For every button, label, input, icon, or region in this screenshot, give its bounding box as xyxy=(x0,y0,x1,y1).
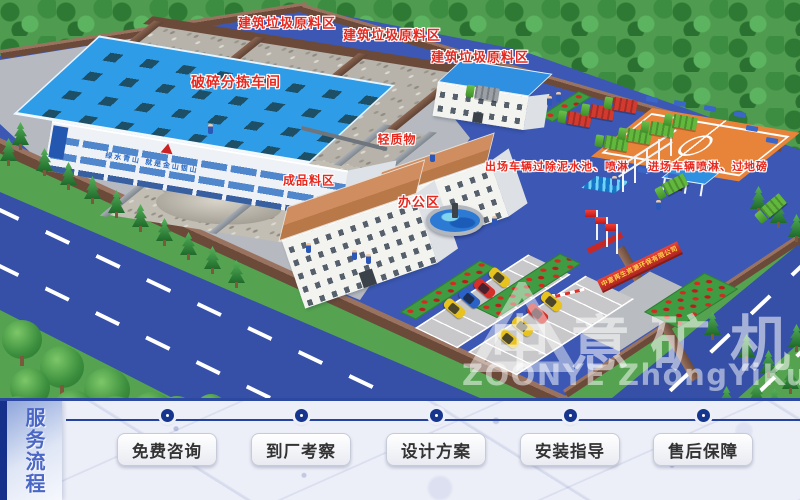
label-office-area: 办公区 xyxy=(398,192,440,211)
label-raw-material-zone-1: 建筑垃圾原料区 xyxy=(238,13,336,32)
pine-tree-icon xyxy=(60,162,77,190)
step-marker-dot xyxy=(697,409,710,422)
step-button-design-plan[interactable]: 设计方案 xyxy=(386,433,486,466)
tree-icon xyxy=(52,390,94,398)
step-button-installation-guidance[interactable]: 安装指导 xyxy=(520,433,620,466)
label-light-material: 轻质物 xyxy=(377,131,416,148)
step-marker-dot xyxy=(564,409,577,422)
dormitory-door xyxy=(472,112,483,123)
bar-left-edge xyxy=(0,401,7,500)
step-button-after-sales-support[interactable]: 售后保障 xyxy=(653,433,753,466)
pine-tree-icon xyxy=(108,190,125,218)
tree-icon xyxy=(10,368,50,398)
person xyxy=(366,254,371,264)
step-marker-dot xyxy=(430,409,443,422)
factory-aerial-scene: 绿水青山 就是金山银山 xyxy=(0,0,800,398)
service-flow-title: 服务流程 xyxy=(20,407,49,495)
label-crushing-workshop: 破碎分拣车间 xyxy=(191,72,281,92)
label-finished-product-zone: 成品料区 xyxy=(283,172,335,189)
step-design-plan: 设计方案 xyxy=(386,401,486,466)
person xyxy=(208,124,213,134)
tree-icon xyxy=(160,396,194,398)
service-process-bar: 服务流程 免费咨询 到厂考察 设计方案 安装指导 售后保障 xyxy=(0,398,800,500)
tree-icon xyxy=(196,394,226,398)
person xyxy=(492,216,497,226)
pine-tree-icon xyxy=(0,138,17,166)
flag-pole xyxy=(596,210,598,240)
person xyxy=(547,96,552,106)
page: 绿水青山 就是金山银山 xyxy=(0,0,800,500)
step-marker-dot xyxy=(161,409,174,422)
step-after-sales-support: 售后保障 xyxy=(653,401,753,466)
factory-logo xyxy=(161,142,174,154)
step-installation-guidance: 安装指导 xyxy=(520,401,620,466)
tree-icon xyxy=(2,320,42,366)
person xyxy=(656,200,661,210)
pine-tree-icon xyxy=(180,232,197,260)
person xyxy=(430,152,435,162)
label-entry-vehicle-wash: 进场车辆喷淋、过地磅 xyxy=(648,158,768,174)
pine-tree-icon xyxy=(84,176,101,204)
person xyxy=(352,250,357,260)
step-factory-visit: 到厂考察 xyxy=(251,401,351,466)
pine-tree-icon xyxy=(132,204,149,232)
flag-pole xyxy=(616,224,618,254)
service-flow-title-panel: 服务流程 xyxy=(7,401,62,500)
pine-tree-icon xyxy=(204,246,221,274)
flag-pole xyxy=(606,217,608,247)
pine-tree-icon xyxy=(788,214,800,242)
step-free-consultation: 免费咨询 xyxy=(117,401,217,466)
label-raw-material-zone-3: 建筑垃圾原料区 xyxy=(431,47,529,66)
step-marker-dot xyxy=(295,409,308,422)
person xyxy=(306,243,311,253)
tree-icon xyxy=(96,396,136,398)
pine-tree-icon xyxy=(228,260,245,288)
person xyxy=(556,92,561,102)
tree-icon xyxy=(0,396,36,398)
pine-tree-icon xyxy=(156,218,173,246)
step-button-factory-visit[interactable]: 到厂考察 xyxy=(251,433,351,466)
fountain-statue xyxy=(452,203,458,218)
pine-tree-icon xyxy=(36,148,53,176)
label-raw-material-zone-2: 建筑垃圾原料区 xyxy=(343,25,441,44)
watermark-text-en: ZOONYE ZhongYiKuangJi xyxy=(462,358,800,392)
person xyxy=(612,176,617,186)
label-exit-vehicle-wash: 出场车辆过除泥水池、喷淋 xyxy=(485,158,629,174)
step-button-free-consultation[interactable]: 免费咨询 xyxy=(117,433,217,466)
